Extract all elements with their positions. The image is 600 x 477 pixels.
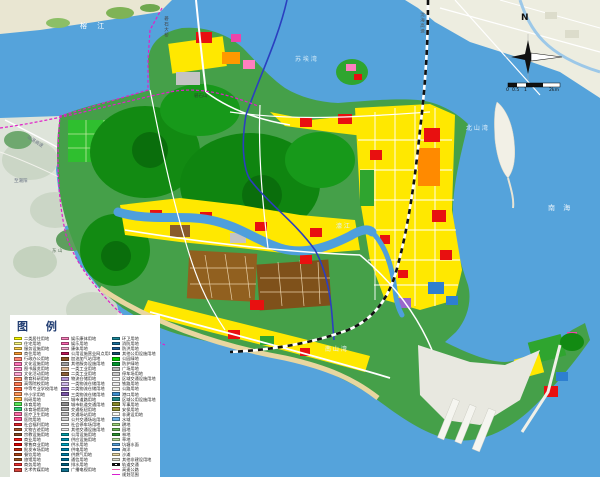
legend-color-swatch [14, 372, 22, 376]
legend-color-swatch [112, 423, 120, 427]
legend-color-swatch [14, 367, 22, 371]
legend-color-swatch [61, 428, 69, 432]
legend-panel: 图 例 二类居住用地住宅用地服务设施用地商住用地行政办公用地文化设施用地图书展览… [10, 315, 160, 477]
legend-color-swatch [112, 337, 120, 341]
legend-column-1: 二类居住用地住宅用地服务设施用地商住用地行政办公用地文化设施用地图书展览用地文化… [14, 336, 59, 477]
legend-color-swatch [112, 448, 120, 452]
legend-color-swatch [14, 342, 22, 346]
scale-tick-label: 0 [506, 88, 509, 93]
legend-color-swatch [61, 382, 69, 386]
legend-color-swatch [112, 412, 120, 416]
legend-color-swatch [61, 438, 69, 442]
legend-color-swatch [61, 433, 69, 437]
legend-color-swatch [112, 372, 120, 376]
legend-color-swatch [61, 412, 69, 416]
legend-color-swatch [14, 417, 22, 421]
island [336, 59, 368, 85]
legend-color-swatch [14, 402, 22, 406]
legend-item: 规划范围 [112, 472, 161, 477]
legend-color-swatch [14, 448, 22, 452]
legend-color-swatch [14, 407, 22, 411]
legend-color-swatch [112, 458, 120, 462]
legend-color-swatch [61, 423, 69, 427]
legend-line-swatch [112, 469, 120, 470]
legend-title: 图 例 [17, 318, 159, 334]
legend-color-swatch [61, 372, 69, 376]
legend-color-swatch [14, 377, 22, 381]
compass-north-label: N [521, 13, 529, 23]
legend-color-swatch [14, 357, 22, 361]
legend-color-swatch [14, 412, 22, 416]
legend-color-swatch [14, 468, 22, 472]
legend-color-swatch [14, 423, 22, 427]
legend-color-swatch [112, 438, 120, 442]
legend-color-swatch [112, 367, 120, 371]
legend-columns: 二类居住用地住宅用地服务设施用地商住用地行政办公用地文化设施用地图书展览用地文化… [14, 336, 159, 477]
legend-color-swatch [14, 438, 22, 442]
legend-color-swatch [61, 397, 69, 401]
scale-bar [508, 83, 560, 87]
scale-tick-label: 0.5 [512, 88, 519, 93]
legend-color-swatch [61, 448, 69, 452]
legend-color-swatch [112, 428, 120, 432]
legend-line-swatch [112, 474, 120, 475]
legend-color-swatch [112, 407, 120, 411]
legend-color-swatch [61, 342, 69, 346]
legend-color-swatch [112, 357, 120, 361]
legend-color-swatch [61, 417, 69, 421]
legend-color-swatch [14, 443, 22, 447]
legend-color-swatch [14, 428, 22, 432]
legend-color-swatch [112, 347, 120, 351]
legend-color-swatch [112, 453, 120, 457]
legend-color-swatch [112, 392, 120, 396]
legend-column-3: 环卫用地消防用地防洪用地其他公用设施用地公园绿地防护绿地广场用地停车场用地区域交… [112, 336, 161, 477]
legend-item: 艺术传媒用地 [14, 467, 59, 472]
legend-color-swatch [112, 433, 120, 437]
legend-color-swatch [112, 402, 120, 406]
legend-color-swatch [61, 367, 69, 371]
legend-color-swatch [112, 443, 120, 447]
legend-color-swatch [14, 453, 22, 457]
legend-color-swatch [61, 352, 69, 356]
legend-color-swatch [14, 362, 22, 366]
legend-line-swatch [112, 463, 120, 466]
legend-color-swatch [61, 362, 69, 366]
legend-color-swatch [14, 337, 22, 341]
planning-map: 榕 江礐石大桥苏 埃 湾沈海高速北 山 湾南 海南 山 湾礐石山东 山汕湛高速至… [0, 0, 600, 477]
legend-color-swatch [61, 357, 69, 361]
legend-item-label: 广播电视用地 [71, 467, 96, 472]
legend-color-swatch [112, 377, 120, 381]
legend-color-swatch [61, 407, 69, 411]
legend-color-swatch [14, 463, 22, 467]
scale-tick-label: 2km [549, 88, 559, 93]
legend-color-swatch [112, 342, 120, 346]
legend-item-label: 规划范围 [122, 472, 139, 477]
legend-column-2: 娱乐康体用地娱乐用地康体用地公用设施营业网点用地加油加气站用地其他服务设施用地一… [61, 336, 110, 477]
legend-color-swatch [61, 453, 69, 457]
legend-color-swatch [61, 458, 69, 462]
legend-color-swatch [14, 433, 22, 437]
legend-color-swatch [14, 392, 22, 396]
legend-color-swatch [61, 337, 69, 341]
legend-item-label: 艺术传媒用地 [24, 467, 49, 472]
legend-color-swatch [61, 402, 69, 406]
legend-color-swatch [112, 382, 120, 386]
legend-color-swatch [14, 397, 22, 401]
legend-color-swatch [61, 377, 69, 381]
legend-color-swatch [112, 397, 120, 401]
legend-color-swatch [14, 347, 22, 351]
legend-color-swatch [14, 458, 22, 462]
legend-color-swatch [61, 463, 69, 467]
legend-color-swatch [14, 387, 22, 391]
legend-color-swatch [61, 347, 69, 351]
legend-color-swatch [61, 387, 69, 391]
legend-item: 广播电视用地 [61, 467, 110, 472]
legend-color-swatch [112, 352, 120, 356]
scale-tick-label: 1 [524, 88, 527, 93]
legend-color-swatch [61, 392, 69, 396]
legend-color-swatch [112, 387, 120, 391]
legend-color-swatch [112, 417, 120, 421]
legend-color-swatch [14, 352, 22, 356]
legend-color-swatch [61, 443, 69, 447]
legend-color-swatch [14, 382, 22, 386]
legend-color-swatch [112, 362, 120, 366]
legend-color-swatch [61, 468, 69, 472]
